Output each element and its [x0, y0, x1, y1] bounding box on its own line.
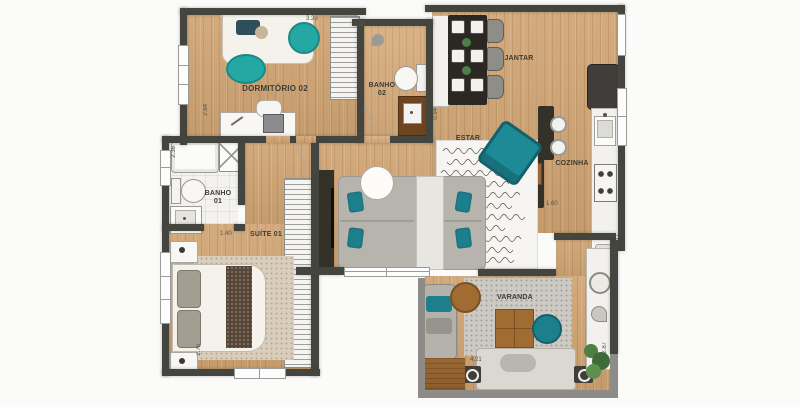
wall	[426, 19, 433, 143]
wall	[180, 8, 366, 15]
window	[617, 88, 627, 146]
plant-centerpiece	[462, 66, 471, 75]
sliding-glass-door	[344, 267, 430, 277]
dim-varanda-width: 4.21	[470, 357, 482, 363]
wall	[425, 5, 625, 12]
parapet-wall	[418, 278, 425, 396]
dim-dormitorio-depth: 2.64	[203, 104, 209, 116]
window	[160, 252, 171, 324]
door-opening	[364, 136, 390, 143]
window-mullion	[161, 276, 170, 277]
toilet-tank	[171, 178, 181, 204]
wall	[610, 240, 618, 354]
dim-suite-depth: 2.76	[196, 344, 202, 356]
refrigerator	[587, 64, 620, 110]
wall	[554, 233, 616, 240]
wall	[238, 143, 245, 205]
window	[234, 368, 286, 379]
room-label-estar: ESTAR	[448, 135, 488, 143]
plate	[470, 49, 484, 63]
room-label-line: BANHO	[198, 190, 238, 198]
room-label-line: BANHO	[362, 82, 402, 90]
dining-chair	[487, 75, 504, 99]
dim-varanda-depth: 2.87	[602, 342, 608, 354]
window-mullion	[179, 65, 188, 66]
sofa-seam	[340, 220, 414, 222]
shower-head-icon	[372, 34, 384, 46]
pillow	[255, 26, 268, 39]
sink-drain	[410, 111, 413, 114]
plate	[470, 78, 484, 92]
room-label-banho-01: BANHO 01	[198, 190, 238, 207]
door-opening	[266, 136, 290, 143]
window-mullion	[259, 369, 260, 378]
pillow	[347, 191, 365, 213]
tv-screen	[331, 188, 334, 248]
door-opening	[296, 136, 316, 143]
pillow	[177, 310, 201, 348]
wall	[296, 267, 344, 275]
sink-drain	[183, 217, 186, 220]
wood-deck	[423, 358, 465, 390]
bar-stool	[550, 139, 567, 156]
faucet-icon	[603, 113, 607, 117]
plate	[451, 78, 465, 92]
dim-banho02-width: 1.38	[354, 22, 366, 28]
wardrobe	[330, 16, 360, 100]
entry-door-opening	[617, 14, 626, 56]
stove	[594, 164, 617, 202]
sideboard	[432, 15, 449, 107]
faucet-icon	[591, 306, 607, 322]
bathtub	[171, 141, 219, 173]
wall	[478, 269, 556, 276]
window	[160, 150, 171, 186]
pillow	[455, 227, 472, 249]
plate	[451, 49, 465, 63]
lamp	[179, 358, 185, 364]
sofa-cushion	[500, 354, 536, 372]
dining-chair	[487, 19, 504, 43]
pillow	[177, 270, 201, 308]
coffee-table	[495, 309, 534, 348]
pouf	[532, 314, 562, 344]
wall	[357, 19, 364, 143]
cushion	[426, 318, 452, 334]
room-label-varanda: VARANDA	[488, 294, 542, 302]
room-label-suite-01: SUÍTE 01	[240, 231, 292, 239]
round-cushion	[288, 22, 320, 54]
side-table-round	[360, 166, 394, 200]
plate	[470, 20, 484, 34]
window-mullion	[618, 116, 626, 117]
plate	[451, 20, 465, 34]
sofa-seam	[444, 220, 482, 222]
room-label-line: 01	[198, 198, 238, 206]
side-table-round	[450, 282, 481, 313]
wall	[311, 143, 319, 376]
lamp	[179, 247, 185, 253]
window-mullion	[161, 167, 170, 168]
room-label-line: 02	[362, 90, 402, 98]
room-label-dormitorio-02: DORMITÓRIO 02	[220, 84, 330, 94]
sofa	[338, 176, 486, 270]
wall	[162, 224, 204, 231]
room-label-jantar: JANTAR	[498, 55, 540, 63]
parapet-wall	[610, 354, 618, 398]
window	[178, 45, 189, 105]
round-rug	[226, 54, 266, 84]
round-basin	[589, 272, 611, 294]
pillow	[455, 191, 473, 213]
plant-centerpiece	[462, 38, 471, 47]
window-mullion	[345, 271, 429, 272]
room-label-cozinha: COZINHA	[550, 160, 594, 168]
window-mullion	[179, 84, 188, 85]
plant	[586, 364, 601, 379]
window-mullion	[386, 268, 387, 276]
bar-stool	[550, 116, 567, 133]
cushion	[426, 296, 452, 312]
dim-suite-entry: 1.40	[220, 231, 232, 237]
window-mullion	[161, 299, 170, 300]
dim-banho01-depth: 2.36	[171, 146, 177, 158]
wall	[234, 224, 245, 231]
dim-dormitorio-width: 3.20	[306, 16, 318, 22]
room-label-banho-02: BANHO 02	[362, 82, 402, 99]
floor-plan: DORMITÓRIO 02 BANHO 02 JANTAR COZINHA ES…	[0, 0, 800, 407]
sofa-console	[416, 176, 444, 270]
dim-estar-opening: 0.94	[433, 108, 439, 120]
spotlight-lens	[466, 369, 479, 382]
pillow	[347, 227, 364, 249]
parapet-wall	[418, 390, 614, 398]
kitchen-sink-basin	[597, 120, 613, 138]
dim-cozinha-width: 1.60	[546, 201, 558, 207]
laptop	[263, 114, 284, 133]
bed-runner	[226, 266, 252, 348]
